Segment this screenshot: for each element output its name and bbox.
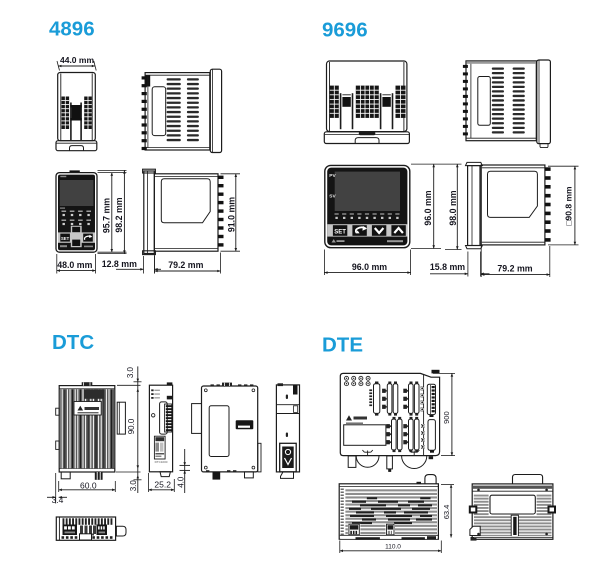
svg-text:SET: SET (334, 229, 346, 235)
svg-text:3.0: 3.0 (129, 480, 138, 492)
svg-text:79.2 mm: 79.2 mm (497, 264, 532, 274)
svg-text:SV: SV (329, 194, 336, 200)
svg-text:SET: SET (61, 236, 70, 241)
svg-text:63.4: 63.4 (442, 505, 451, 520)
svg-text:4.0: 4.0 (176, 476, 185, 488)
svg-text:90.0: 90.0 (127, 418, 136, 434)
svg-text:DTC: DTC (52, 331, 94, 354)
svg-text:12.8 mm: 12.8 mm (102, 259, 137, 269)
svg-text:96.0 mm: 96.0 mm (352, 262, 387, 272)
svg-text:DTC1000: DTC1000 (155, 460, 168, 464)
svg-text:95.7 mm: 95.7 mm (101, 198, 111, 233)
svg-text:900: 900 (442, 411, 451, 424)
svg-text:91.0 mm: 91.0 mm (227, 197, 237, 232)
svg-text:3.0: 3.0 (126, 366, 135, 378)
svg-text:PV: PV (329, 173, 336, 179)
svg-text:110.0: 110.0 (385, 543, 401, 550)
svg-text:98.0 mm: 98.0 mm (448, 190, 458, 225)
svg-text:79.2 mm: 79.2 mm (168, 260, 203, 270)
svg-text:96.0 mm: 96.0 mm (423, 190, 433, 225)
svg-text:9696: 9696 (322, 19, 368, 42)
svg-text:25.2: 25.2 (154, 479, 171, 489)
svg-text:98.2 mm: 98.2 mm (114, 197, 124, 232)
svg-text:15.8 mm: 15.8 mm (430, 262, 465, 272)
svg-text:60.0: 60.0 (80, 480, 97, 490)
svg-text:48.0 mm: 48.0 mm (57, 260, 92, 270)
svg-text:DTE: DTE (322, 334, 363, 357)
svg-text:4896: 4896 (49, 18, 95, 41)
svg-text:44.0 mm: 44.0 mm (60, 55, 94, 65)
svg-text:□90.8 mm: □90.8 mm (563, 186, 573, 226)
